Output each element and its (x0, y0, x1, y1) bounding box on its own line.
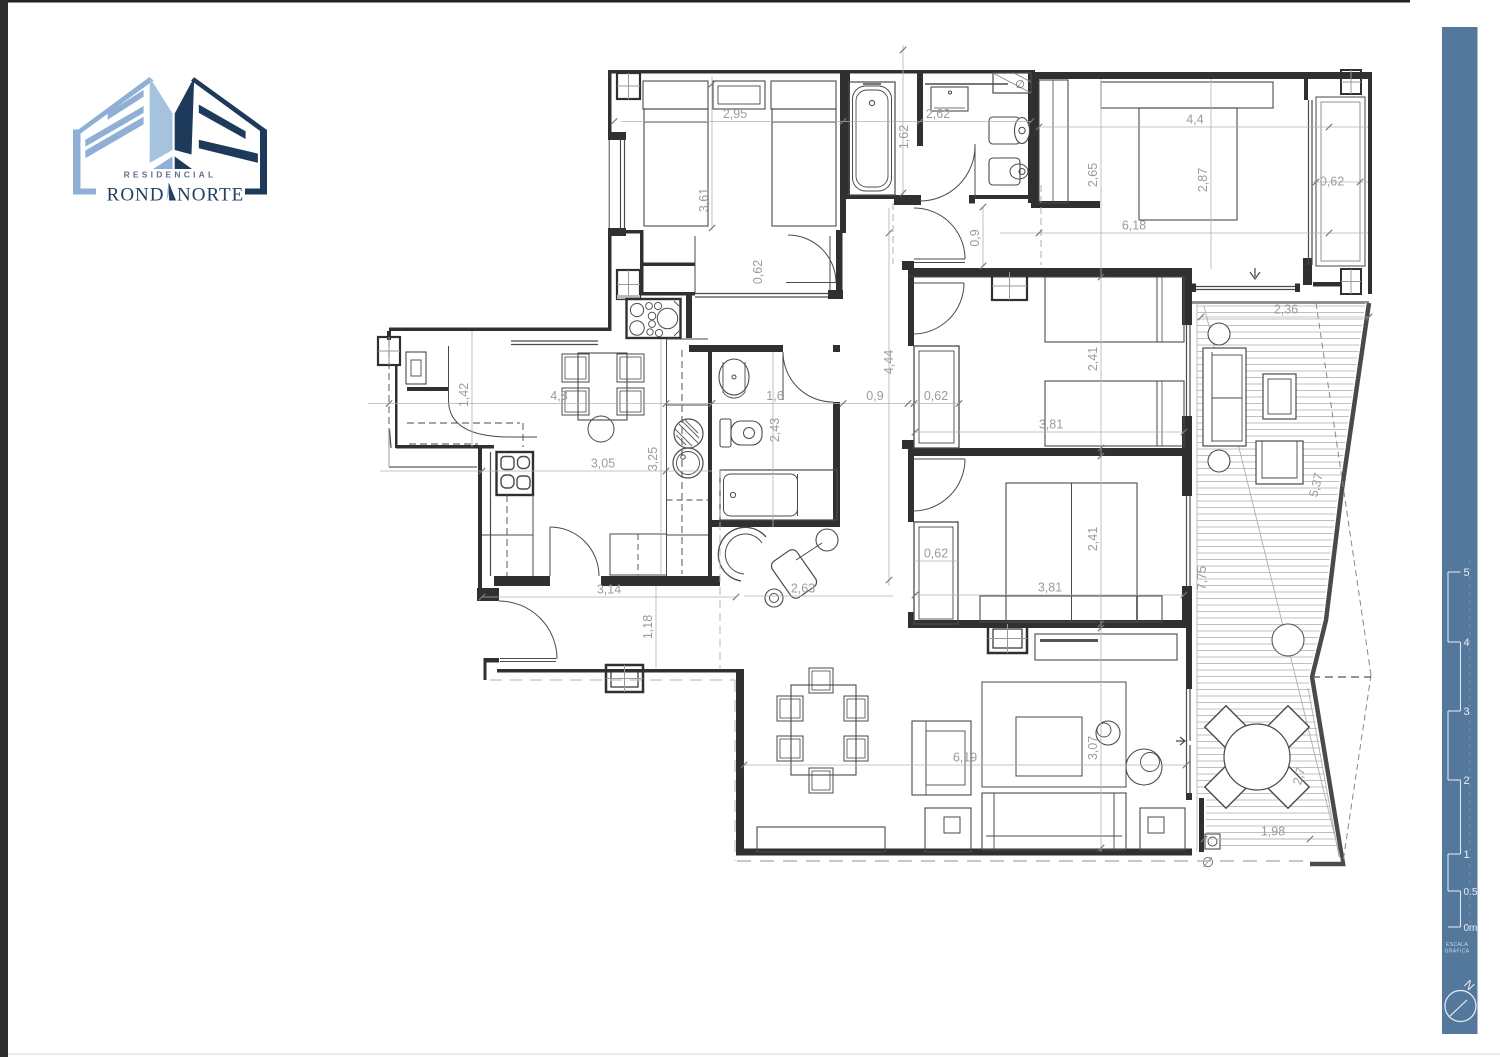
svg-text:0,62: 0,62 (924, 389, 948, 403)
svg-text:0m: 0m (1464, 923, 1478, 934)
svg-text:2,41: 2,41 (1086, 527, 1100, 551)
svg-text:0,62: 0,62 (1320, 175, 1344, 189)
svg-text:NORTE: NORTE (177, 185, 244, 206)
svg-text:1,98: 1,98 (1261, 825, 1285, 839)
svg-text:4,8: 4,8 (550, 389, 567, 403)
svg-text:2,62: 2,62 (926, 107, 950, 121)
svg-text:6,19: 6,19 (953, 751, 977, 765)
svg-text:GRÁFICA: GRÁFICA (1444, 948, 1469, 955)
svg-text:1,18: 1,18 (641, 615, 655, 639)
svg-text:RESIDENCIAL: RESIDENCIAL (124, 170, 217, 180)
svg-text:3,81: 3,81 (1038, 581, 1062, 595)
svg-text:0,62: 0,62 (924, 547, 948, 561)
svg-text:3: 3 (1464, 706, 1470, 718)
svg-text:2,41: 2,41 (1086, 347, 1100, 371)
svg-text:ESCALA: ESCALA (1446, 942, 1468, 948)
svg-text:0,62: 0,62 (751, 260, 765, 284)
svg-text:2,65: 2,65 (1086, 163, 1100, 187)
svg-text:0.5: 0.5 (1464, 887, 1478, 898)
svg-text:4,44: 4,44 (882, 350, 896, 374)
svg-text:3,05: 3,05 (591, 457, 615, 471)
svg-text:1,42: 1,42 (457, 383, 471, 407)
svg-text:1,62: 1,62 (897, 125, 911, 149)
svg-text:6,18: 6,18 (1122, 219, 1146, 233)
svg-text:0,9: 0,9 (968, 229, 982, 246)
svg-text:7,75: 7,75 (1195, 566, 1209, 590)
svg-text:3,25: 3,25 (646, 447, 660, 471)
svg-text:1,6: 1,6 (766, 389, 783, 403)
svg-text:2,95: 2,95 (723, 107, 747, 121)
svg-text:3,81: 3,81 (1039, 418, 1063, 432)
svg-text:4,4: 4,4 (1186, 113, 1203, 127)
svg-text:0,9: 0,9 (866, 389, 883, 403)
svg-text:2,87: 2,87 (1196, 168, 1210, 192)
svg-text:2: 2 (1464, 775, 1470, 787)
svg-text:2,43: 2,43 (768, 418, 782, 442)
svg-text:2,36: 2,36 (1274, 303, 1298, 317)
svg-text:2,63: 2,63 (791, 582, 815, 596)
svg-text:∅: ∅ (1015, 79, 1025, 91)
svg-text:3,61: 3,61 (697, 188, 711, 212)
svg-text:ROND: ROND (107, 185, 165, 206)
svg-text:3,14: 3,14 (597, 583, 621, 597)
svg-text:4: 4 (1464, 637, 1470, 649)
svg-text:∅: ∅ (1202, 854, 1214, 870)
svg-text:5: 5 (1464, 567, 1470, 579)
svg-text:3,07: 3,07 (1086, 736, 1100, 760)
svg-text:1: 1 (1464, 849, 1470, 861)
